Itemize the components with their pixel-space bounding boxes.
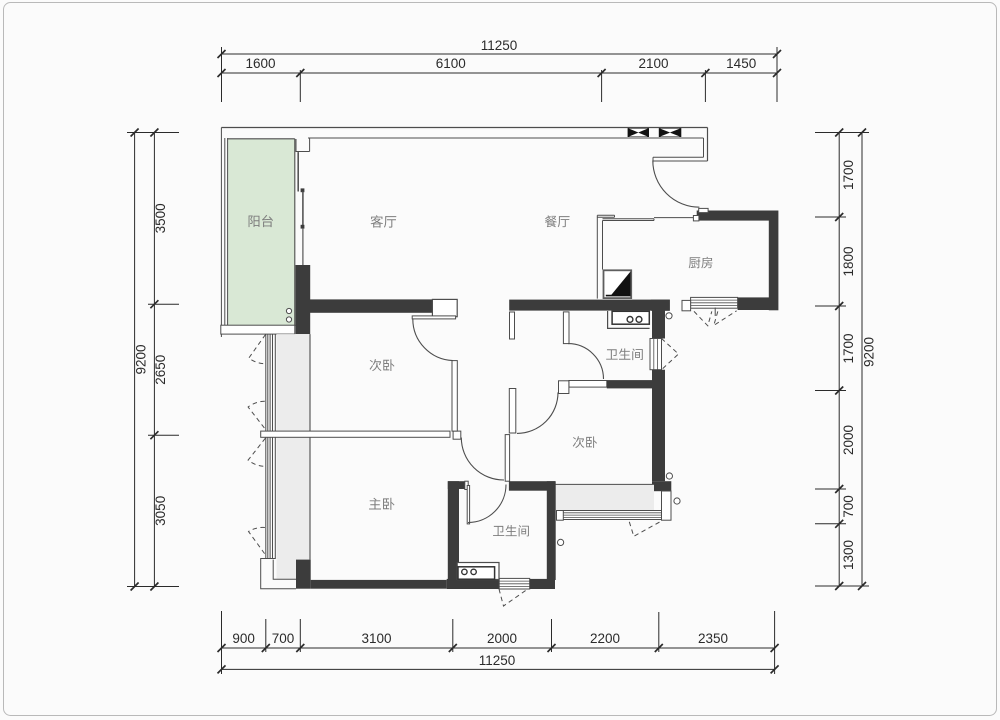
svg-text:11250: 11250 — [479, 653, 516, 668]
svg-text:1700: 1700 — [841, 160, 856, 190]
svg-text:1450: 1450 — [726, 56, 756, 71]
svg-text:6100: 6100 — [436, 56, 466, 71]
svg-text:3100: 3100 — [361, 631, 391, 646]
svg-text:9200: 9200 — [862, 337, 877, 367]
svg-text:1600: 1600 — [245, 56, 275, 71]
svg-text:1800: 1800 — [841, 246, 856, 276]
svg-text:700: 700 — [841, 495, 856, 518]
svg-text:700: 700 — [272, 631, 295, 646]
svg-text:1700: 1700 — [841, 333, 856, 363]
svg-text:900: 900 — [232, 631, 255, 646]
svg-text:2350: 2350 — [698, 631, 728, 646]
svg-text:2200: 2200 — [590, 631, 620, 646]
svg-text:2100: 2100 — [638, 56, 668, 71]
svg-text:2650: 2650 — [153, 355, 168, 385]
svg-text:9200: 9200 — [134, 344, 149, 374]
svg-text:3500: 3500 — [153, 203, 168, 233]
svg-text:2000: 2000 — [487, 631, 517, 646]
svg-text:3050: 3050 — [153, 496, 168, 526]
svg-text:2000: 2000 — [841, 425, 856, 455]
svg-text:11250: 11250 — [481, 38, 518, 53]
svg-text:1300: 1300 — [841, 540, 856, 570]
